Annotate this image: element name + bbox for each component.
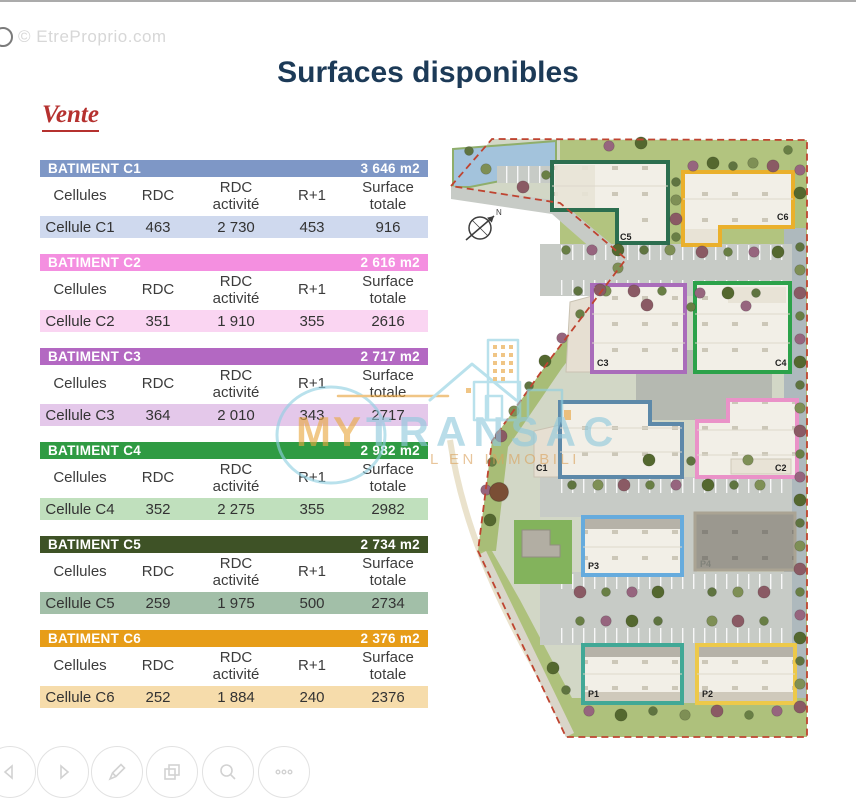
building-total-area: 2 717 m2: [361, 349, 420, 364]
column-header: RDC activité: [201, 368, 271, 400]
building-total-area: 2 376 m2: [361, 631, 420, 646]
cell-value: 259: [145, 595, 170, 612]
column-header: Surface totale: [353, 462, 423, 494]
page-title: Surfaces disponibles: [0, 56, 856, 90]
cell-row: Cellule C23511 9103552616: [40, 310, 428, 332]
cell-row: Cellule C43522 2753552982: [40, 498, 428, 520]
cell-value: 1 910: [217, 313, 255, 330]
cell-value: 252: [145, 689, 170, 706]
column-header: RDC: [142, 376, 175, 392]
previous-icon: [0, 760, 22, 784]
compass-icon: N: [466, 208, 502, 240]
cell-value: 2 275: [217, 501, 255, 518]
magnifier-icon: [216, 760, 240, 784]
zoom-button[interactable]: [202, 746, 254, 798]
label-c3: C3: [597, 358, 609, 368]
cell-value: 1 975: [217, 595, 255, 612]
column-header: Cellules: [53, 470, 106, 486]
cell-label: Cellule C5: [45, 595, 114, 612]
column-header: Surface totale: [353, 368, 423, 400]
cell-value: 355: [299, 313, 324, 330]
building-table-1: BATIMENT C13 646 m2CellulesRDCRDC activi…: [40, 160, 428, 238]
page: { "page": { "watermark": "© EtreProprio.…: [0, 0, 856, 800]
column-header-row: CellulesRDCRDC activitéR+1Surface totale: [40, 647, 428, 686]
cell-value: 2717: [371, 407, 404, 424]
building-table-4: BATIMENT C42 982 m2CellulesRDCRDC activi…: [40, 442, 428, 520]
gallery-icon: [160, 760, 184, 784]
cell-value: 463: [145, 219, 170, 236]
cell-row: Cellule C62521 8842402376: [40, 686, 428, 708]
building-table-5: BATIMENT C52 734 m2CellulesRDCRDC activi…: [40, 536, 428, 614]
column-header: RDC activité: [201, 650, 271, 682]
building-name: BATIMENT C3: [48, 349, 141, 364]
cell-value: 453: [299, 219, 324, 236]
cell-value: 364: [145, 407, 170, 424]
section-label-vente: Vente: [42, 101, 99, 132]
previous-button[interactable]: [0, 746, 36, 798]
building-total-area: 2 734 m2: [361, 537, 420, 552]
more-dots-icon: [272, 760, 296, 784]
cell-value: 916: [375, 219, 400, 236]
compass-north-label: N: [496, 208, 502, 217]
cell-row: Cellule C52591 9755002734: [40, 592, 428, 614]
column-header: Surface totale: [353, 650, 423, 682]
label-p1: P1: [588, 689, 599, 699]
cell-value: 355: [299, 501, 324, 518]
column-header: Cellules: [53, 376, 106, 392]
cell-row: Cellule C14632 730453916: [40, 216, 428, 238]
column-header: RDC activité: [201, 180, 271, 212]
draw-button[interactable]: [91, 746, 143, 798]
column-header: R+1: [298, 188, 326, 204]
cell-row: Cellule C33642 0103432717: [40, 404, 428, 426]
next-icon: [51, 760, 75, 784]
column-header: RDC: [142, 188, 175, 204]
label-p3: P3: [588, 561, 599, 571]
building-table-6: BATIMENT C62 376 m2CellulesRDCRDC activi…: [40, 630, 428, 708]
cell-value: 2982: [371, 501, 404, 518]
column-header-row: CellulesRDCRDC activitéR+1Surface totale: [40, 365, 428, 404]
building-table-header: BATIMENT C52 734 m2: [40, 536, 428, 553]
pen-icon: [105, 760, 129, 784]
column-header-row: CellulesRDCRDC activitéR+1Surface totale: [40, 553, 428, 592]
site-plan-map: C5 C6 C3 C4 C1 C2 P3 P4 P1 P2 N: [440, 128, 856, 760]
cell-value: 2 730: [217, 219, 255, 236]
column-header: RDC activité: [201, 556, 271, 588]
building-table-header: BATIMENT C62 376 m2: [40, 630, 428, 647]
building-name: BATIMENT C2: [48, 255, 141, 270]
building-table-header: BATIMENT C13 646 m2: [40, 160, 428, 177]
building-name: BATIMENT C1: [48, 161, 141, 176]
cell-label: Cellule C1: [45, 219, 114, 236]
etreproprio-watermark: © EtreProprio.com: [18, 27, 167, 47]
column-header: Cellules: [53, 658, 106, 674]
cell-value: 2616: [371, 313, 404, 330]
label-p2: P2: [702, 689, 713, 699]
building-table-3: BATIMENT C32 717 m2CellulesRDCRDC activi…: [40, 348, 428, 426]
viewer-toolbar: [0, 746, 856, 798]
cell-value: 500: [299, 595, 324, 612]
cell-value: 343: [299, 407, 324, 424]
building-name: BATIMENT C5: [48, 537, 141, 552]
column-header: R+1: [298, 376, 326, 392]
building-total-area: 3 646 m2: [361, 161, 420, 176]
building-table-header: BATIMENT C22 616 m2: [40, 254, 428, 271]
column-header: R+1: [298, 564, 326, 580]
building-name: BATIMENT C6: [48, 631, 141, 646]
column-header: RDC: [142, 282, 175, 298]
cell-value: 2376: [371, 689, 404, 706]
cell-value: 2 010: [217, 407, 255, 424]
column-header: R+1: [298, 658, 326, 674]
column-header: Cellules: [53, 188, 106, 204]
column-header-row: CellulesRDCRDC activitéR+1Surface totale: [40, 271, 428, 310]
cell-label: Cellule C3: [45, 407, 114, 424]
building-name: BATIMENT C4: [48, 443, 141, 458]
surface-tables: BATIMENT C13 646 m2CellulesRDCRDC activi…: [40, 160, 428, 724]
label-c1: C1: [536, 463, 548, 473]
cell-value: 351: [145, 313, 170, 330]
column-header: RDC: [142, 470, 175, 486]
top-border-line: [0, 0, 856, 2]
more-button[interactable]: [258, 746, 310, 798]
column-header: RDC activité: [201, 274, 271, 306]
building-table-header: BATIMENT C42 982 m2: [40, 442, 428, 459]
column-header: R+1: [298, 470, 326, 486]
column-header: Surface totale: [353, 180, 423, 212]
column-header: RDC activité: [201, 462, 271, 494]
cell-value: 352: [145, 501, 170, 518]
cell-label: Cellule C4: [45, 501, 114, 518]
column-header-row: CellulesRDCRDC activitéR+1Surface totale: [40, 177, 428, 216]
cell-value: 240: [299, 689, 324, 706]
building-table-2: BATIMENT C22 616 m2CellulesRDCRDC activi…: [40, 254, 428, 332]
label-p4: P4: [700, 559, 711, 569]
column-header: Cellules: [53, 282, 106, 298]
corner-mark-icon: [0, 27, 13, 47]
label-c6: C6: [777, 212, 789, 222]
label-c5: C5: [620, 232, 632, 242]
column-header: RDC: [142, 658, 175, 674]
column-header: RDC: [142, 564, 175, 580]
column-header: Surface totale: [353, 556, 423, 588]
column-header: R+1: [298, 282, 326, 298]
column-header: Cellules: [53, 564, 106, 580]
next-button[interactable]: [37, 746, 89, 798]
cell-value: 2734: [371, 595, 404, 612]
label-c4: C4: [775, 358, 787, 368]
cell-value: 1 884: [217, 689, 255, 706]
label-c2: C2: [775, 463, 787, 473]
column-header: Surface totale: [353, 274, 423, 306]
building-total-area: 2 616 m2: [361, 255, 420, 270]
cell-label: Cellule C2: [45, 313, 114, 330]
cell-label: Cellule C6: [45, 689, 114, 706]
gallery-button[interactable]: [146, 746, 198, 798]
building-total-area: 2 982 m2: [361, 443, 420, 458]
column-header-row: CellulesRDCRDC activitéR+1Surface totale: [40, 459, 428, 498]
building-table-header: BATIMENT C32 717 m2: [40, 348, 428, 365]
